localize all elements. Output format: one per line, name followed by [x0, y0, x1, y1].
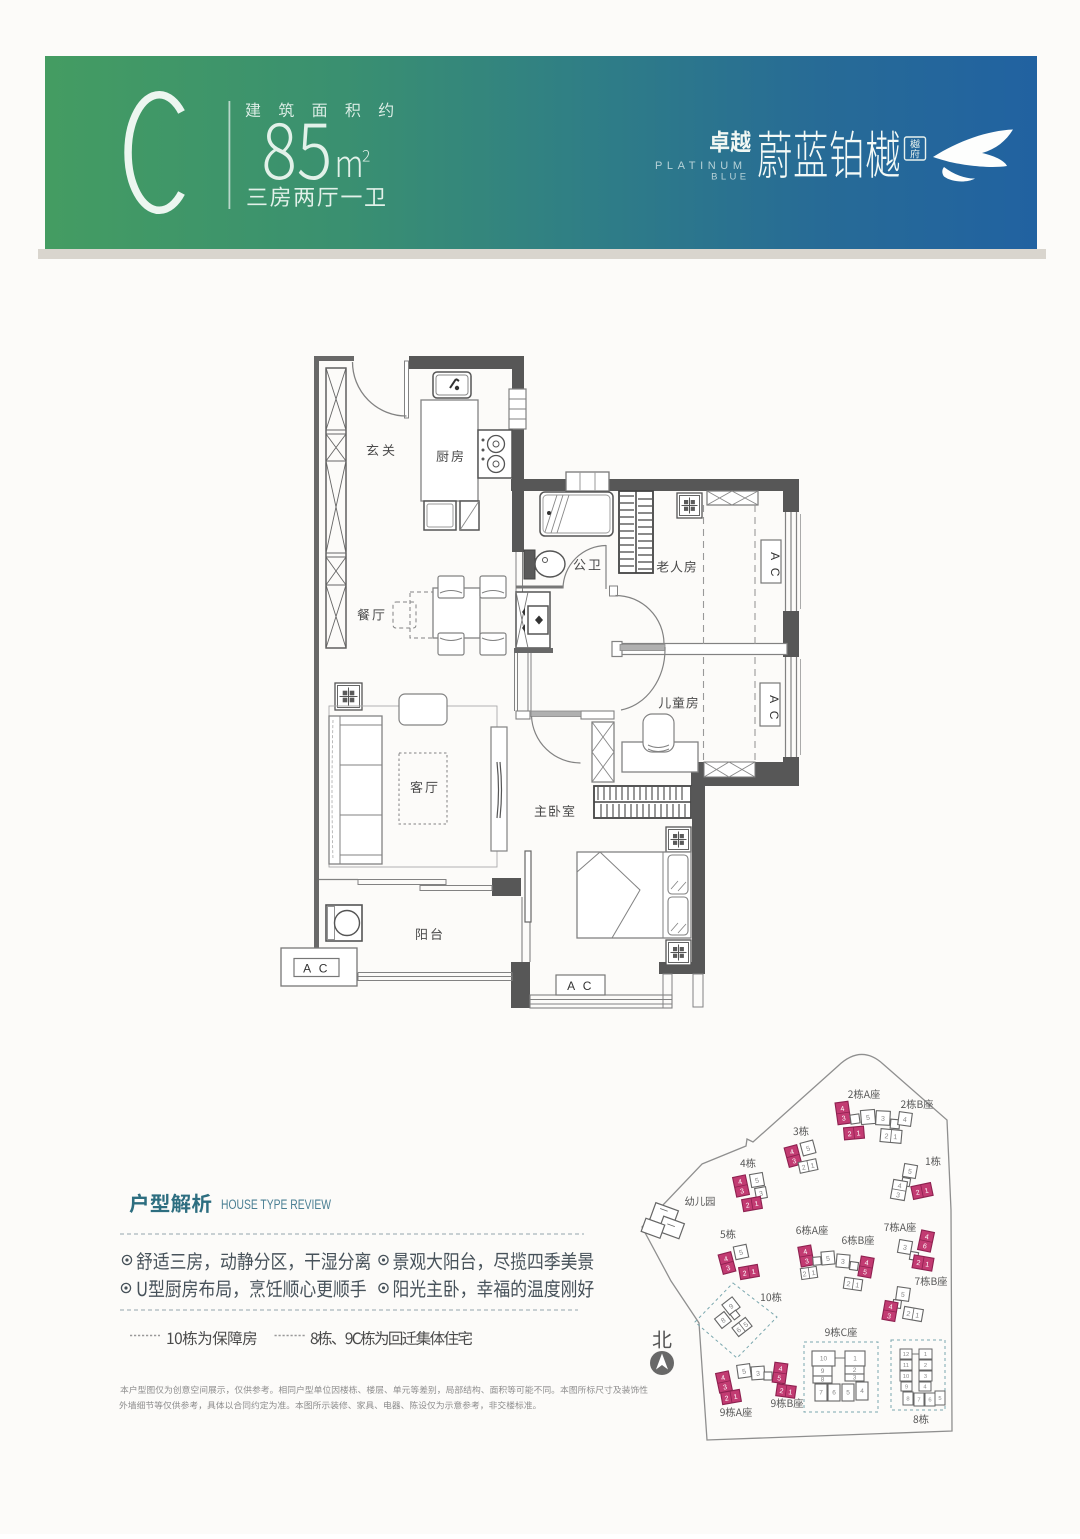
- svg-text:5: 5: [846, 1390, 850, 1397]
- svg-text:5: 5: [866, 1115, 871, 1122]
- svg-text:5: 5: [938, 1396, 941, 1402]
- svg-text:A C: A C: [767, 695, 781, 722]
- svg-text:7: 7: [819, 1390, 823, 1397]
- svg-text:3: 3: [881, 1116, 885, 1123]
- svg-text:9: 9: [821, 1368, 825, 1375]
- svg-text:1: 1: [924, 1352, 927, 1358]
- svg-text:3: 3: [841, 1259, 846, 1266]
- svg-text:1: 1: [893, 1134, 898, 1141]
- svg-text:10: 10: [903, 1374, 909, 1380]
- svg-text:1: 1: [853, 1356, 857, 1363]
- svg-text:6: 6: [832, 1390, 836, 1397]
- svg-text:2: 2: [847, 1131, 852, 1138]
- svg-text:3: 3: [853, 1375, 857, 1382]
- svg-text:A C: A C: [567, 979, 594, 993]
- svg-text:HOUSE TYPE REVIEW: HOUSE TYPE REVIEW: [221, 1197, 331, 1212]
- svg-text:11: 11: [903, 1363, 909, 1369]
- svg-text:6: 6: [928, 1398, 931, 1404]
- svg-text:9: 9: [905, 1385, 908, 1391]
- svg-text:3: 3: [924, 1374, 927, 1380]
- svg-text:PLATINUM: PLATINUM: [655, 160, 747, 172]
- svg-text:7: 7: [917, 1398, 920, 1404]
- svg-text:8: 8: [821, 1377, 825, 1384]
- svg-text:BLUE: BLUE: [711, 172, 749, 183]
- svg-text:4: 4: [860, 1388, 864, 1395]
- svg-text:2: 2: [884, 1133, 889, 1140]
- svg-text:8: 8: [906, 1397, 909, 1403]
- svg-text:3: 3: [756, 1371, 760, 1378]
- svg-text:12: 12: [903, 1352, 909, 1358]
- svg-text:5: 5: [826, 1256, 831, 1263]
- svg-text:A C: A C: [768, 552, 782, 579]
- svg-text:10: 10: [820, 1356, 828, 1363]
- svg-text:2: 2: [924, 1363, 927, 1369]
- svg-text:1: 1: [856, 1130, 861, 1137]
- svg-text:A C: A C: [303, 962, 330, 976]
- svg-text:2: 2: [853, 1367, 857, 1374]
